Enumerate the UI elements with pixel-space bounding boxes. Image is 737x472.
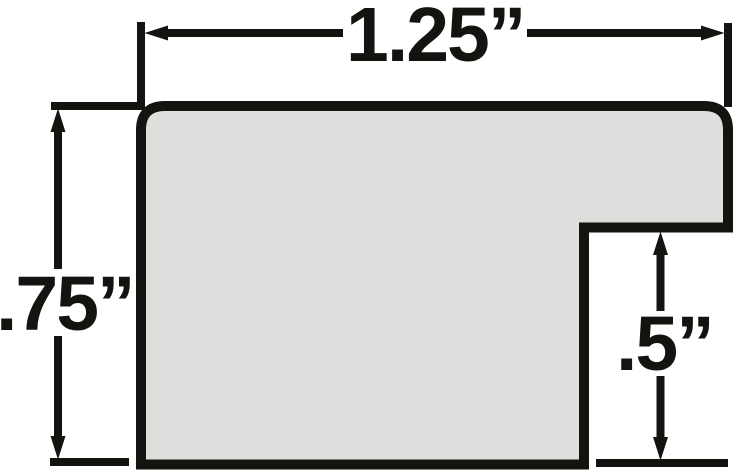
- svg-text:1.25”: 1.25”: [346, 0, 524, 78]
- svg-text:.75”: .75”: [0, 261, 134, 347]
- svg-text:.5”: .5”: [616, 301, 713, 387]
